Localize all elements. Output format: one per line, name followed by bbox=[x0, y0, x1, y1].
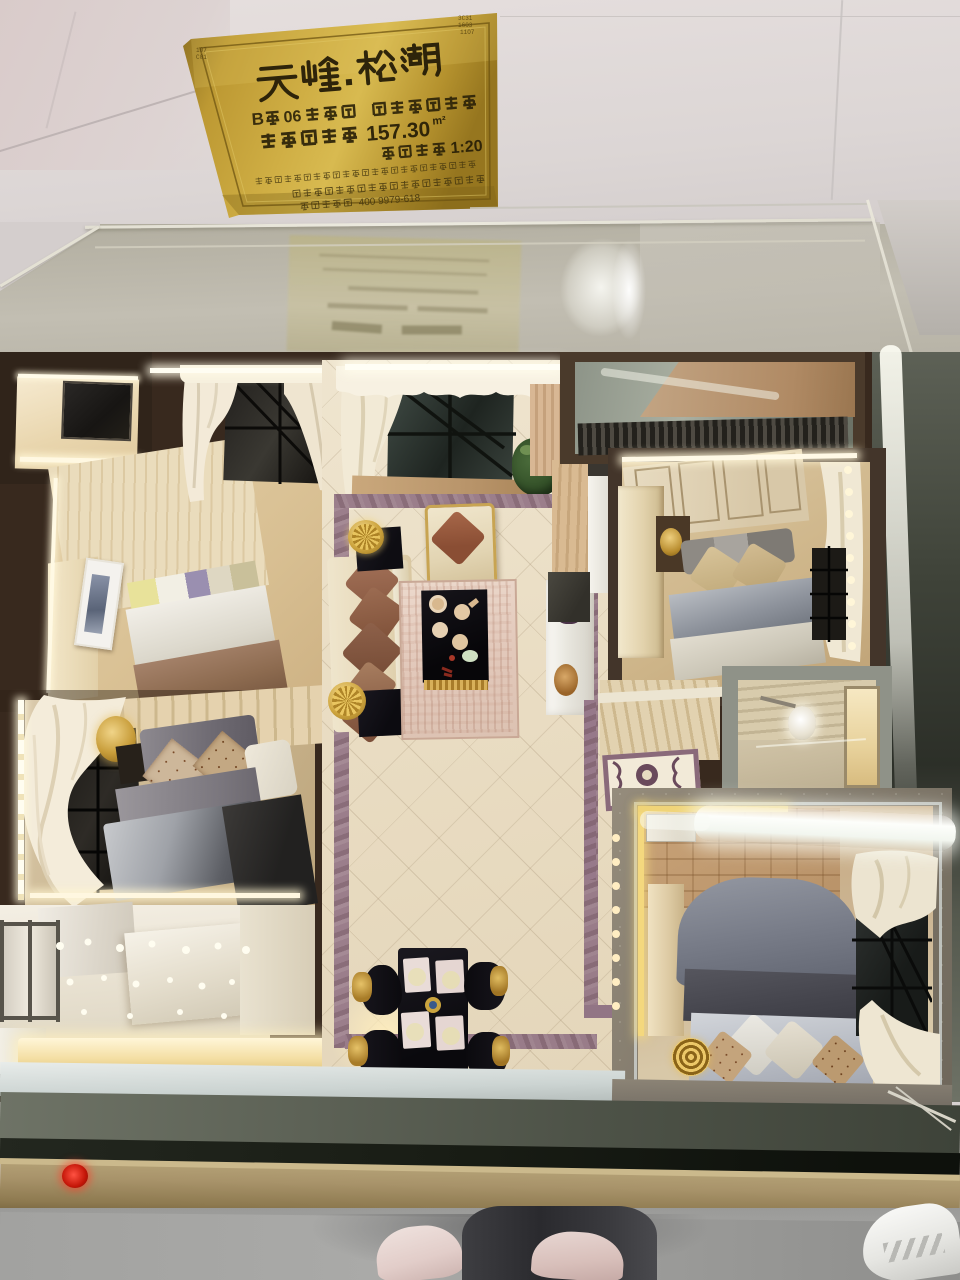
svg-text:1:20: 1:20 bbox=[450, 138, 483, 158]
svg-text:06: 06 bbox=[283, 108, 302, 126]
svg-text:C01: C01 bbox=[196, 54, 207, 61]
svg-text:3C31: 3C31 bbox=[458, 15, 473, 22]
svg-text:B: B bbox=[251, 109, 265, 129]
svg-text:107: 107 bbox=[196, 47, 207, 54]
svg-text:16O3: 16O3 bbox=[458, 22, 473, 29]
svg-text:m²: m² bbox=[432, 115, 447, 128]
svg-text:11O7: 11O7 bbox=[460, 29, 475, 36]
